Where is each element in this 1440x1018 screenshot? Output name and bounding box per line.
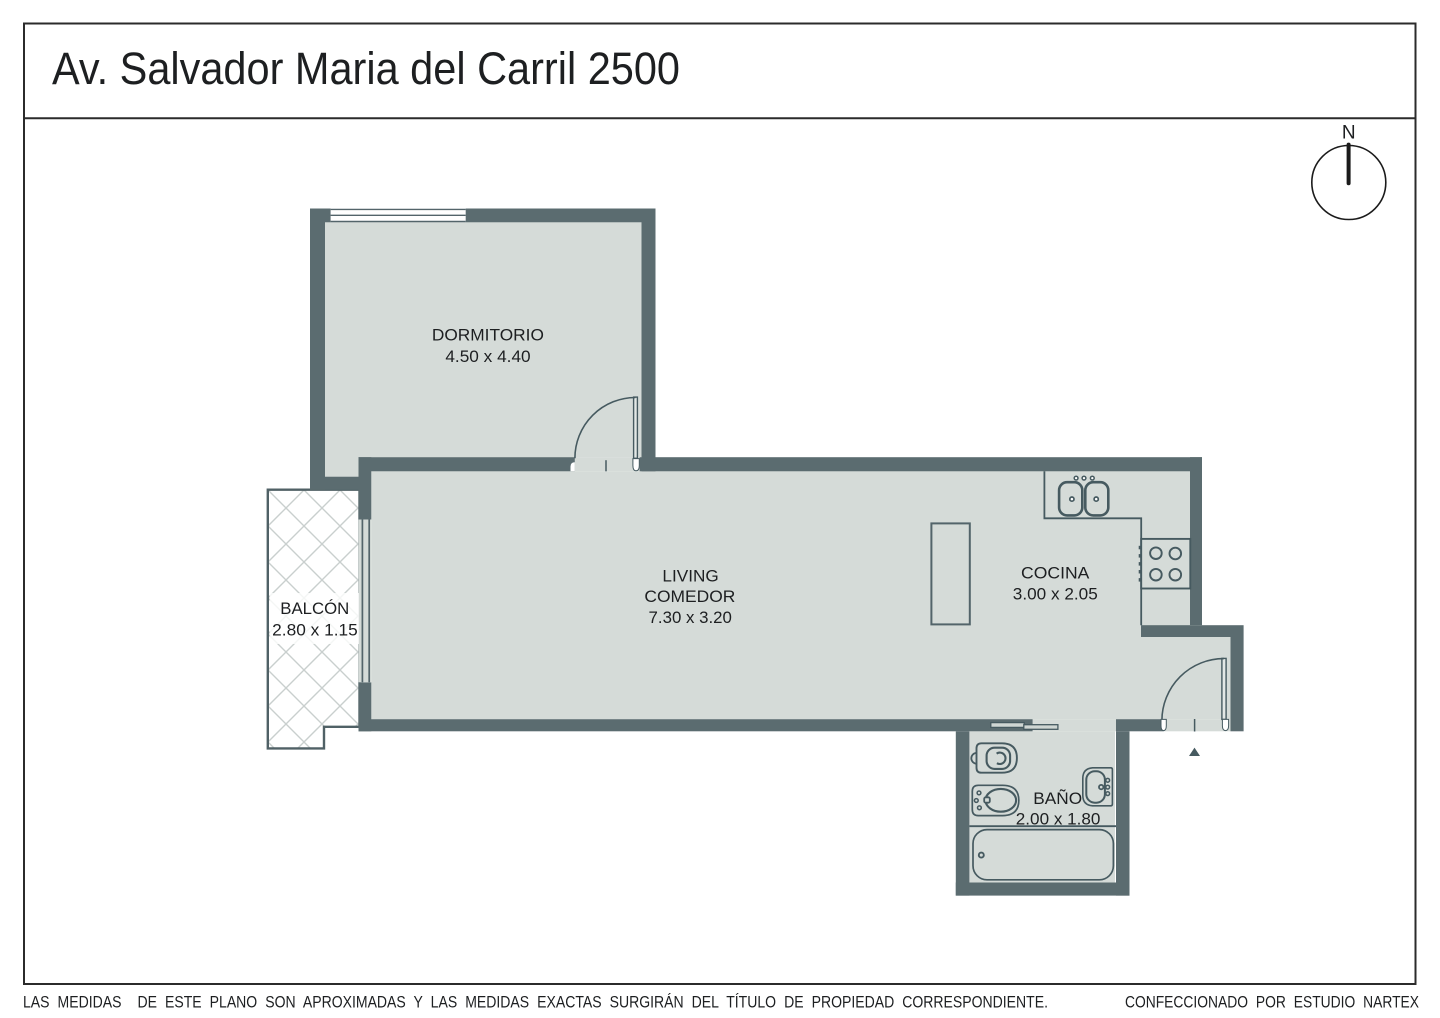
svg-text:DORMITORIO: DORMITORIO [432, 326, 544, 345]
svg-text:2.80 x 1.15: 2.80 x 1.15 [272, 620, 358, 639]
svg-text:Av. Salvador Maria del Carril: Av. Salvador Maria del Carril 2500 [52, 43, 680, 94]
svg-text:COMEDOR: COMEDOR [644, 587, 735, 606]
svg-text:4.50 x 4.40: 4.50 x 4.40 [445, 347, 530, 366]
svg-text:7.30 x 3.20: 7.30 x 3.20 [649, 608, 732, 627]
svg-text:BAÑO: BAÑO [1033, 789, 1082, 808]
svg-text:3.00 x 2.05: 3.00 x 2.05 [1013, 584, 1098, 603]
svg-text:N: N [1342, 123, 1356, 144]
svg-text:LIVING: LIVING [662, 566, 718, 585]
svg-text:2.00 x 1.80: 2.00 x 1.80 [1016, 810, 1101, 829]
svg-text:BALCÓN: BALCÓN [280, 599, 349, 618]
svg-text:COCINA: COCINA [1021, 563, 1090, 582]
svg-text:LAS MEDIDAS DE ESTE PLANO SON: LAS MEDIDAS DE ESTE PLANO SON APROXIMADA… [23, 993, 1048, 1012]
svg-text:CONFECCIONADO POR ESTUDIO NART: CONFECCIONADO POR ESTUDIO NARTEX [1125, 993, 1419, 1012]
